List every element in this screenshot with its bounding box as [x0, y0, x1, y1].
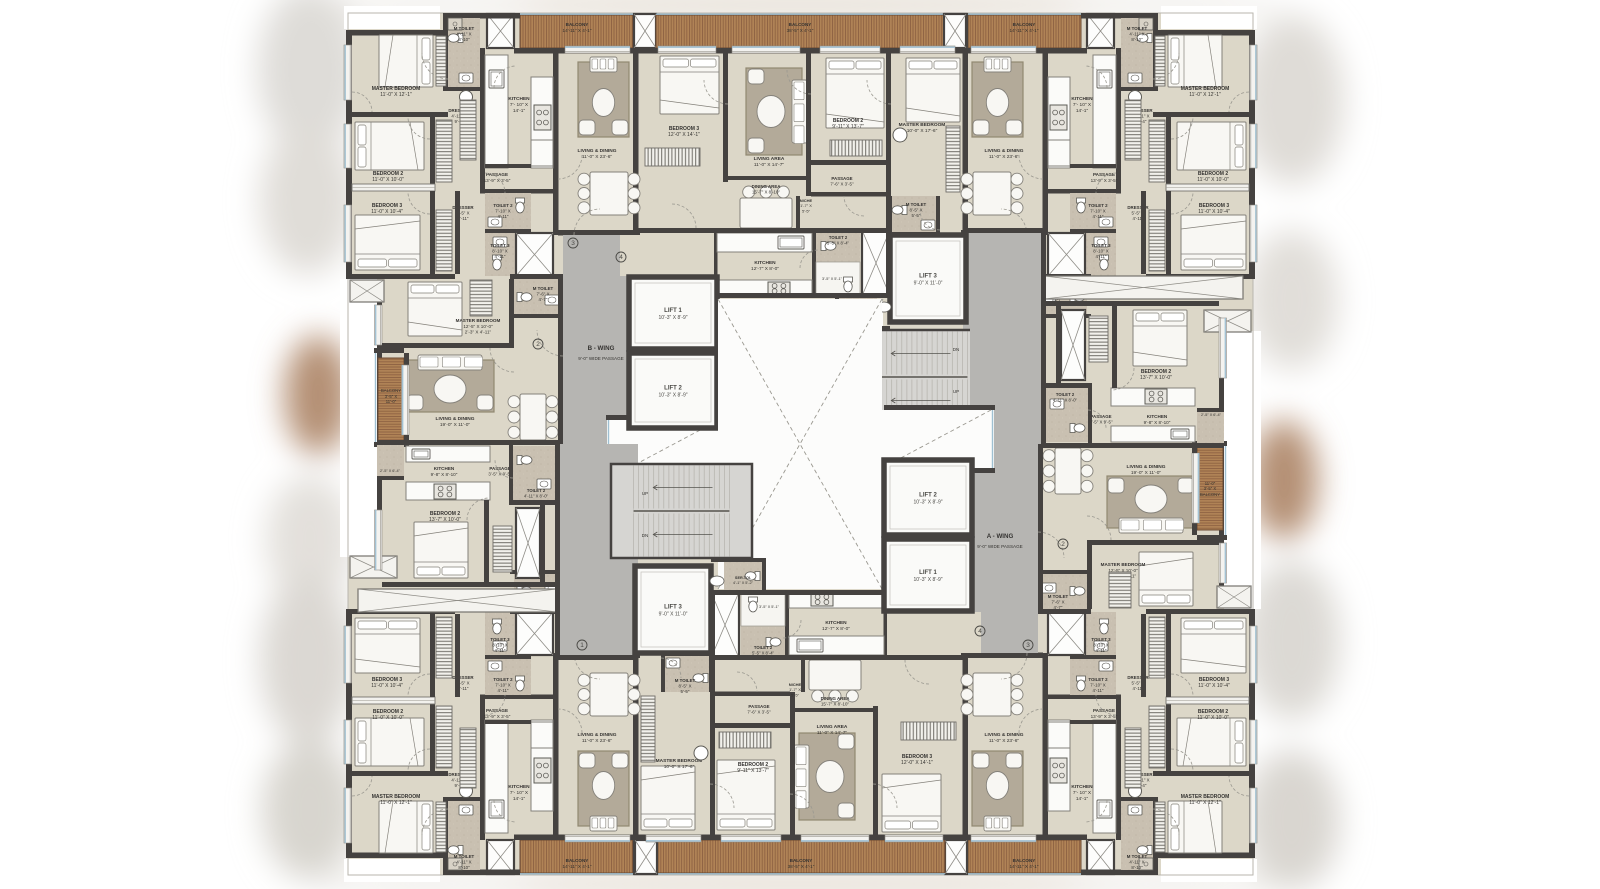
svg-text:7’-10" X: 7’-10" X — [495, 209, 511, 214]
svg-text:4’-11": 4’-11" — [1093, 214, 1104, 219]
svg-text:10’-3" X 8’-9": 10’-3" X 8’-9" — [913, 577, 942, 583]
svg-text:MASTER BEDROOM: MASTER BEDROOM — [456, 318, 501, 323]
svg-text:5’-5" X 8’-4": 5’-5" X 8’-4" — [752, 650, 775, 655]
svg-text:3’-5" X 9’-5": 3’-5" X 9’-5" — [1089, 420, 1113, 425]
svg-text:7’-10" X: 7’-10" X — [1090, 683, 1106, 688]
svg-text:BEDROOM 2: BEDROOM 2 — [1198, 709, 1229, 715]
svg-text:4’-7": 4’-7" — [539, 297, 548, 302]
svg-text:38’-5" X 4’-1": 38’-5" X 4’-1" — [787, 28, 814, 33]
svg-text:5’-5": 5’-5" — [912, 213, 921, 218]
svg-text:LIVING & DINING: LIVING & DINING — [578, 148, 617, 154]
svg-text:14’-1": 14’-1" — [513, 796, 526, 802]
svg-text:TOILET 3: TOILET 3 — [490, 243, 510, 248]
svg-text:LIFT 1: LIFT 1 — [664, 308, 682, 314]
svg-text:8’-10": 8’-10" — [1131, 865, 1143, 870]
svg-text:LIFT 2: LIFT 2 — [919, 493, 937, 499]
svg-text:BALCONY: BALCONY — [1200, 492, 1220, 497]
svg-text:BEDROOM 2: BEDROOM 2 — [1198, 171, 1229, 177]
svg-text:BALCONY: BALCONY — [789, 22, 812, 27]
svg-text:13’-9" X 3’-5": 13’-9" X 3’-5" — [484, 178, 511, 183]
svg-text:4’-11" X: 4’-11" X — [1129, 32, 1144, 37]
svg-text:A - WING: A - WING — [987, 533, 1014, 540]
svg-text:BEDROOM 2: BEDROOM 2 — [430, 511, 461, 517]
svg-text:M TOILET: M TOILET — [454, 26, 475, 31]
svg-text:KITCHEN: KITCHEN — [1071, 784, 1093, 790]
svg-text:11’-0": 11’-0" — [386, 399, 397, 404]
svg-text:LIVING & DINING: LIVING & DINING — [1127, 464, 1166, 470]
svg-text:8’-10": 8’-10" — [1131, 37, 1143, 42]
svg-text:9’-0" X 11’-0": 9’-0" X 11’-0" — [659, 612, 688, 618]
svg-text:MASTER BEDROOM: MASTER BEDROOM — [1101, 562, 1146, 567]
svg-text:3’-5" X: 3’-5" X — [1204, 486, 1217, 491]
svg-text:TOILET 2: TOILET 2 — [1088, 677, 1108, 682]
svg-text:14’-1": 14’-1" — [1076, 796, 1089, 802]
svg-text:4’-11": 4’-11" — [1096, 648, 1107, 653]
svg-text:11’-0" X 12’-1": 11’-0" X 12’-1" — [380, 800, 412, 806]
svg-text:9’-11" X 13’-7": 9’-11" X 13’-7" — [737, 768, 769, 774]
svg-text:KITCHEN: KITCHEN — [825, 620, 847, 626]
svg-text:PASSAGE: PASSAGE — [1090, 414, 1111, 419]
svg-text:8’-10" X: 8’-10" X — [1093, 643, 1109, 648]
svg-text:3: 3 — [1026, 642, 1030, 649]
svg-text:11’-0" X 14’-7": 11’-0" X 14’-7" — [817, 730, 848, 736]
svg-text:2’-3" X 4’-11": 2’-3" X 4’-11" — [465, 330, 492, 335]
svg-text:12’-7" X 8’-0": 12’-7" X 8’-0" — [751, 266, 779, 272]
svg-text:LIFT 2: LIFT 2 — [664, 386, 682, 392]
svg-text:11’-0" X 10’-4": 11’-0" X 10’-4" — [371, 683, 403, 689]
svg-text:2: 2 — [1061, 541, 1065, 548]
svg-text:4’-11": 4’-11" — [498, 214, 509, 219]
svg-text:BALCONY: BALCONY — [1013, 22, 1036, 27]
svg-text:19’-0" X 11’-0": 19’-0" X 11’-0" — [440, 422, 471, 428]
svg-text:BEDROOM 2: BEDROOM 2 — [833, 118, 864, 124]
svg-text:8’-5" X: 8’-5" X — [909, 208, 922, 213]
svg-text:9’-0" X 11’-0": 9’-0" X 11’-0" — [914, 281, 943, 287]
svg-text:11’-0" X 23’-6": 11’-0" X 23’-6" — [989, 154, 1020, 160]
svg-text:4’-11" X 8’-0": 4’-11" X 8’-0" — [524, 493, 549, 498]
svg-text:4: 4 — [619, 254, 623, 261]
svg-text:TOILET 2: TOILET 2 — [829, 235, 848, 240]
svg-text:11’-0" X 10’-0": 11’-0" X 10’-0" — [372, 177, 404, 183]
svg-text:BALCONY: BALCONY — [381, 388, 401, 393]
svg-text:7’- 10" X: 7’- 10" X — [510, 102, 529, 108]
svg-text:M TOILET: M TOILET — [533, 286, 554, 291]
svg-text:3’-5" X 5’-1": 3’-5" X 5’-1" — [822, 277, 843, 281]
svg-text:LIFT 3: LIFT 3 — [919, 274, 937, 280]
svg-text:M TOILET: M TOILET — [1127, 854, 1148, 859]
svg-text:M TOILET: M TOILET — [1127, 26, 1148, 31]
svg-text:BALCONY: BALCONY — [1013, 858, 1036, 863]
svg-text:M TOILET: M TOILET — [675, 678, 696, 683]
svg-text:11’-0" X 10’-4": 11’-0" X 10’-4" — [1198, 683, 1230, 689]
svg-text:2’-5" X 6’-4": 2’-5" X 6’-4" — [1201, 413, 1222, 417]
svg-text:DRESSER: DRESSER — [1127, 205, 1149, 210]
svg-text:11’-0" X 12’-1": 11’-0" X 12’-1" — [1189, 92, 1221, 98]
svg-text:3: 3 — [571, 240, 575, 247]
svg-text:LIVING AREA: LIVING AREA — [817, 724, 848, 730]
svg-text:9’-8" X 8’-10": 9’-8" X 8’-10" — [1144, 420, 1171, 425]
svg-text:4’-11" X: 4’-11" X — [456, 32, 471, 37]
svg-text:4’-11" X: 4’-11" X — [1129, 860, 1144, 865]
svg-text:TOILET 2: TOILET 2 — [754, 645, 773, 650]
svg-text:TOILET 2: TOILET 2 — [527, 488, 546, 493]
svg-text:8’-10" X: 8’-10" X — [1093, 249, 1109, 254]
svg-text:M TOILET: M TOILET — [906, 202, 927, 207]
svg-text:4’-11": 4’-11" — [1096, 254, 1107, 259]
svg-text:11’-0" X 14’-7": 11’-0" X 14’-7" — [754, 162, 785, 168]
svg-text:7’- 10" X: 7’- 10" X — [510, 790, 529, 796]
svg-text:9’-8" X 8’-10": 9’-8" X 8’-10" — [431, 472, 458, 477]
svg-text:DINING AREA: DINING AREA — [752, 184, 782, 189]
svg-text:7’- 10" X: 7’- 10" X — [1073, 102, 1092, 108]
svg-text:BEDROOM 3: BEDROOM 3 — [372, 203, 403, 209]
svg-text:DINING AREA: DINING AREA — [821, 696, 851, 701]
svg-text:BEDROOM 3: BEDROOM 3 — [372, 677, 403, 683]
svg-text:LIVING & DINING: LIVING & DINING — [985, 732, 1024, 738]
svg-text:7’-6" X: 7’-6" X — [1051, 600, 1064, 605]
svg-text:14’-1": 14’-1" — [513, 108, 526, 114]
svg-text:LIFT 3: LIFT 3 — [664, 605, 682, 611]
svg-text:10’-3" X 8’-9": 10’-3" X 8’-9" — [658, 393, 687, 399]
svg-text:KITCHEN: KITCHEN — [508, 784, 530, 790]
svg-text:8’-10" X: 8’-10" X — [492, 643, 508, 648]
svg-text:4’-11": 4’-11" — [495, 254, 506, 259]
svg-text:11’-0" X 23’-6": 11’-0" X 23’-6" — [989, 738, 1020, 744]
svg-text:10’-3" X 8’-9": 10’-3" X 8’-9" — [658, 315, 687, 321]
svg-text:PASSAGE: PASSAGE — [1093, 172, 1115, 177]
svg-text:11’-0" X 10’-4": 11’-0" X 10’-4" — [1198, 209, 1230, 215]
svg-text:14’-11" X 4’-1": 14’-11" X 4’-1" — [1010, 28, 1039, 33]
svg-text:M TOILET: M TOILET — [454, 854, 475, 859]
svg-text:15’-7" X 8’-10": 15’-7" X 8’-10" — [821, 702, 849, 707]
svg-text:12’-5" X 10’-0": 12’-5" X 10’-0" — [463, 324, 493, 329]
svg-text:11’-0" X 23’-6": 11’-0" X 23’-6" — [582, 738, 613, 744]
svg-text:KITCHEN: KITCHEN — [1147, 414, 1168, 419]
svg-text:TOILET 3: TOILET 3 — [1091, 243, 1111, 248]
svg-text:1: 1 — [580, 642, 584, 649]
svg-text:11’-0" X 10’-0": 11’-0" X 10’-0" — [1197, 177, 1229, 183]
svg-text:MASTER BEDROOM: MASTER BEDROOM — [1181, 794, 1230, 800]
svg-text:KITCHEN: KITCHEN — [1071, 96, 1093, 102]
svg-text:MASTER BEDROOM: MASTER BEDROOM — [1181, 86, 1230, 92]
svg-text:PASSAGE: PASSAGE — [489, 466, 510, 471]
svg-text:LIVING & DINING: LIVING & DINING — [985, 148, 1024, 154]
svg-text:PASSAGE: PASSAGE — [486, 172, 508, 177]
svg-text:14’-11" X 4’-1": 14’-11" X 4’-1" — [1010, 864, 1039, 869]
svg-text:7’-6" X: 7’-6" X — [536, 292, 549, 297]
svg-text:5’-5" X 8’-4": 5’-5" X 8’-4" — [827, 240, 850, 245]
svg-text:LIVING & DINING: LIVING & DINING — [436, 416, 475, 422]
svg-text:10’-3" X 8’-9": 10’-3" X 8’-9" — [913, 500, 942, 506]
svg-text:12’-0" X 14’-1": 12’-0" X 14’-1" — [668, 132, 700, 138]
svg-text:14’-11" X 4’-1": 14’-11" X 4’-1" — [563, 28, 592, 33]
svg-text:KITCHEN: KITCHEN — [434, 466, 455, 471]
svg-text:4: 4 — [978, 628, 982, 635]
svg-text:9’-11" X 13’-7": 9’-11" X 13’-7" — [832, 124, 864, 130]
svg-text:9’-0" WIDE PASSAGE: 9’-0" WIDE PASSAGE — [977, 544, 1022, 549]
svg-text:11’-0": 11’-0" — [1205, 481, 1216, 486]
svg-text:11’-0" X 12’-1": 11’-0" X 12’-1" — [1189, 800, 1221, 806]
svg-text:DN: DN — [642, 533, 649, 538]
svg-text:3’-5" X 9’-5": 3’-5" X 9’-5" — [488, 472, 512, 477]
svg-text:BEDROOM 2: BEDROOM 2 — [738, 762, 769, 768]
svg-text:BEDROOM 3: BEDROOM 3 — [902, 754, 933, 760]
svg-text:TOILET 3: TOILET 3 — [490, 637, 510, 642]
svg-text:11’-0" X 10’-0": 11’-0" X 10’-0" — [372, 715, 404, 721]
svg-text:BEDROOM 3: BEDROOM 3 — [669, 126, 700, 132]
svg-text:11’-0" X 10’-0": 11’-0" X 10’-0" — [1197, 715, 1229, 721]
svg-text:LIFT 1: LIFT 1 — [919, 570, 937, 576]
svg-text:PASSAGE: PASSAGE — [831, 176, 852, 181]
svg-text:MASTER BEDROOM: MASTER BEDROOM — [372, 86, 421, 92]
svg-text:7’-6" X 3’-5": 7’-6" X 3’-5" — [830, 182, 854, 187]
svg-text:5’-5": 5’-5" — [791, 692, 800, 697]
svg-text:11’-0" X 10’-4": 11’-0" X 10’-4" — [371, 209, 403, 215]
svg-text:5’-5": 5’-5" — [681, 689, 690, 694]
svg-text:UP: UP — [642, 491, 648, 496]
svg-text:3’-5" X 5’-1": 3’-5" X 5’-1" — [759, 605, 780, 609]
svg-text:MASTER BEDROOM: MASTER BEDROOM — [656, 758, 703, 764]
svg-text:BALCONY: BALCONY — [566, 22, 589, 27]
svg-text:7’-6" X 3’-5": 7’-6" X 3’-5" — [747, 710, 771, 715]
svg-text:8’-10": 8’-10" — [458, 37, 470, 42]
svg-text:TOILET 3: TOILET 3 — [1091, 637, 1111, 642]
svg-text:BEDROOM 2: BEDROOM 2 — [373, 171, 404, 177]
svg-text:8’-10" X: 8’-10" X — [492, 249, 508, 254]
svg-text:15’-7" X 8’-10": 15’-7" X 8’-10" — [752, 190, 780, 195]
svg-text:BEDROOM 3: BEDROOM 3 — [1199, 677, 1230, 683]
svg-text:SER.TOI.: SER.TOI. — [735, 576, 751, 580]
svg-text:DN: DN — [953, 347, 960, 352]
svg-text:14’-1": 14’-1" — [1076, 108, 1089, 114]
svg-text:BALCONY: BALCONY — [566, 858, 589, 863]
svg-text:PASSAGE: PASSAGE — [1093, 708, 1115, 713]
svg-text:7’- 10" X: 7’- 10" X — [1073, 790, 1092, 796]
svg-text:4’-11" X: 4’-11" X — [456, 860, 471, 865]
svg-text:PASSAGE: PASSAGE — [748, 704, 769, 709]
svg-text:TOILET 2: TOILET 2 — [493, 203, 513, 208]
svg-text:2’-5" X 6’-4": 2’-5" X 6’-4" — [380, 469, 401, 473]
svg-text:LIVING AREA: LIVING AREA — [754, 156, 785, 162]
svg-text:BEDROOM 3: BEDROOM 3 — [1199, 203, 1230, 209]
svg-text:KITCHEN: KITCHEN — [754, 260, 776, 266]
svg-text:4’-1" X 5’-2": 4’-1" X 5’-2" — [733, 581, 754, 585]
svg-text:7’-10" X: 7’-10" X — [495, 683, 511, 688]
svg-text:LIVING & DINING: LIVING & DINING — [578, 732, 617, 738]
svg-text:4’-11": 4’-11" — [498, 688, 509, 693]
svg-text:19’-0" X 11’-0": 19’-0" X 11’-0" — [1131, 470, 1162, 476]
svg-text:BALCONY: BALCONY — [790, 858, 813, 863]
svg-text:TOILET 2: TOILET 2 — [493, 677, 513, 682]
svg-text:TOILET 2: TOILET 2 — [1088, 203, 1108, 208]
svg-text:B - WING: B - WING — [588, 345, 615, 352]
svg-text:9’-0" WIDE PASSAGE: 9’-0" WIDE PASSAGE — [578, 356, 623, 361]
svg-text:2: 2 — [536, 341, 540, 348]
svg-text:4’-11" X 8’-0": 4’-11" X 8’-0" — [1053, 397, 1078, 402]
svg-text:10’-0" X 17’-6": 10’-0" X 17’-6" — [907, 128, 938, 134]
svg-text:BEDROOM 2: BEDROOM 2 — [1141, 369, 1172, 375]
svg-text:13’-9" X 3’-5": 13’-9" X 3’-5" — [1091, 178, 1118, 183]
svg-text:38’-5" X 4’-1": 38’-5" X 4’-1" — [788, 864, 815, 869]
svg-text:UP: UP — [953, 389, 959, 394]
svg-text:11’-0" X 23’-6": 11’-0" X 23’-6" — [582, 154, 613, 160]
svg-text:13’-7" X 10’-0": 13’-7" X 10’-0" — [429, 517, 461, 523]
svg-text:TOILET 2: TOILET 2 — [1056, 392, 1075, 397]
svg-text:8’-5" X: 8’-5" X — [678, 684, 691, 689]
svg-text:4’-11": 4’-11" — [1093, 688, 1104, 693]
svg-text:10’-0" X 17’-6": 10’-0" X 17’-6" — [664, 764, 695, 770]
svg-text:7’-10" X: 7’-10" X — [1090, 209, 1106, 214]
svg-text:DRESSER: DRESSER — [1127, 675, 1149, 680]
svg-text:4’-11": 4’-11" — [495, 648, 506, 653]
svg-text:KITCHEN: KITCHEN — [508, 96, 530, 102]
svg-text:MASTER BEDROOM: MASTER BEDROOM — [899, 122, 946, 128]
svg-text:12’-7" X 8’-0": 12’-7" X 8’-0" — [822, 626, 850, 632]
svg-text:13’-7" X 10’-0": 13’-7" X 10’-0" — [1140, 375, 1172, 381]
svg-text:M TOILET: M TOILET — [1048, 594, 1069, 599]
svg-text:8’-10": 8’-10" — [458, 865, 470, 870]
svg-text:MASTER BEDROOM: MASTER BEDROOM — [372, 794, 421, 800]
svg-text:BEDROOM 2: BEDROOM 2 — [373, 709, 404, 715]
svg-text:12’-0" X 14’-1": 12’-0" X 14’-1" — [901, 760, 933, 766]
svg-text:5’-5": 5’-5" — [802, 208, 811, 213]
svg-text:11’-0" X 12’-1": 11’-0" X 12’-1" — [380, 92, 412, 98]
svg-text:PASSAGE: PASSAGE — [486, 708, 508, 713]
svg-text:14’-11" X 4’-1": 14’-11" X 4’-1" — [563, 864, 592, 869]
